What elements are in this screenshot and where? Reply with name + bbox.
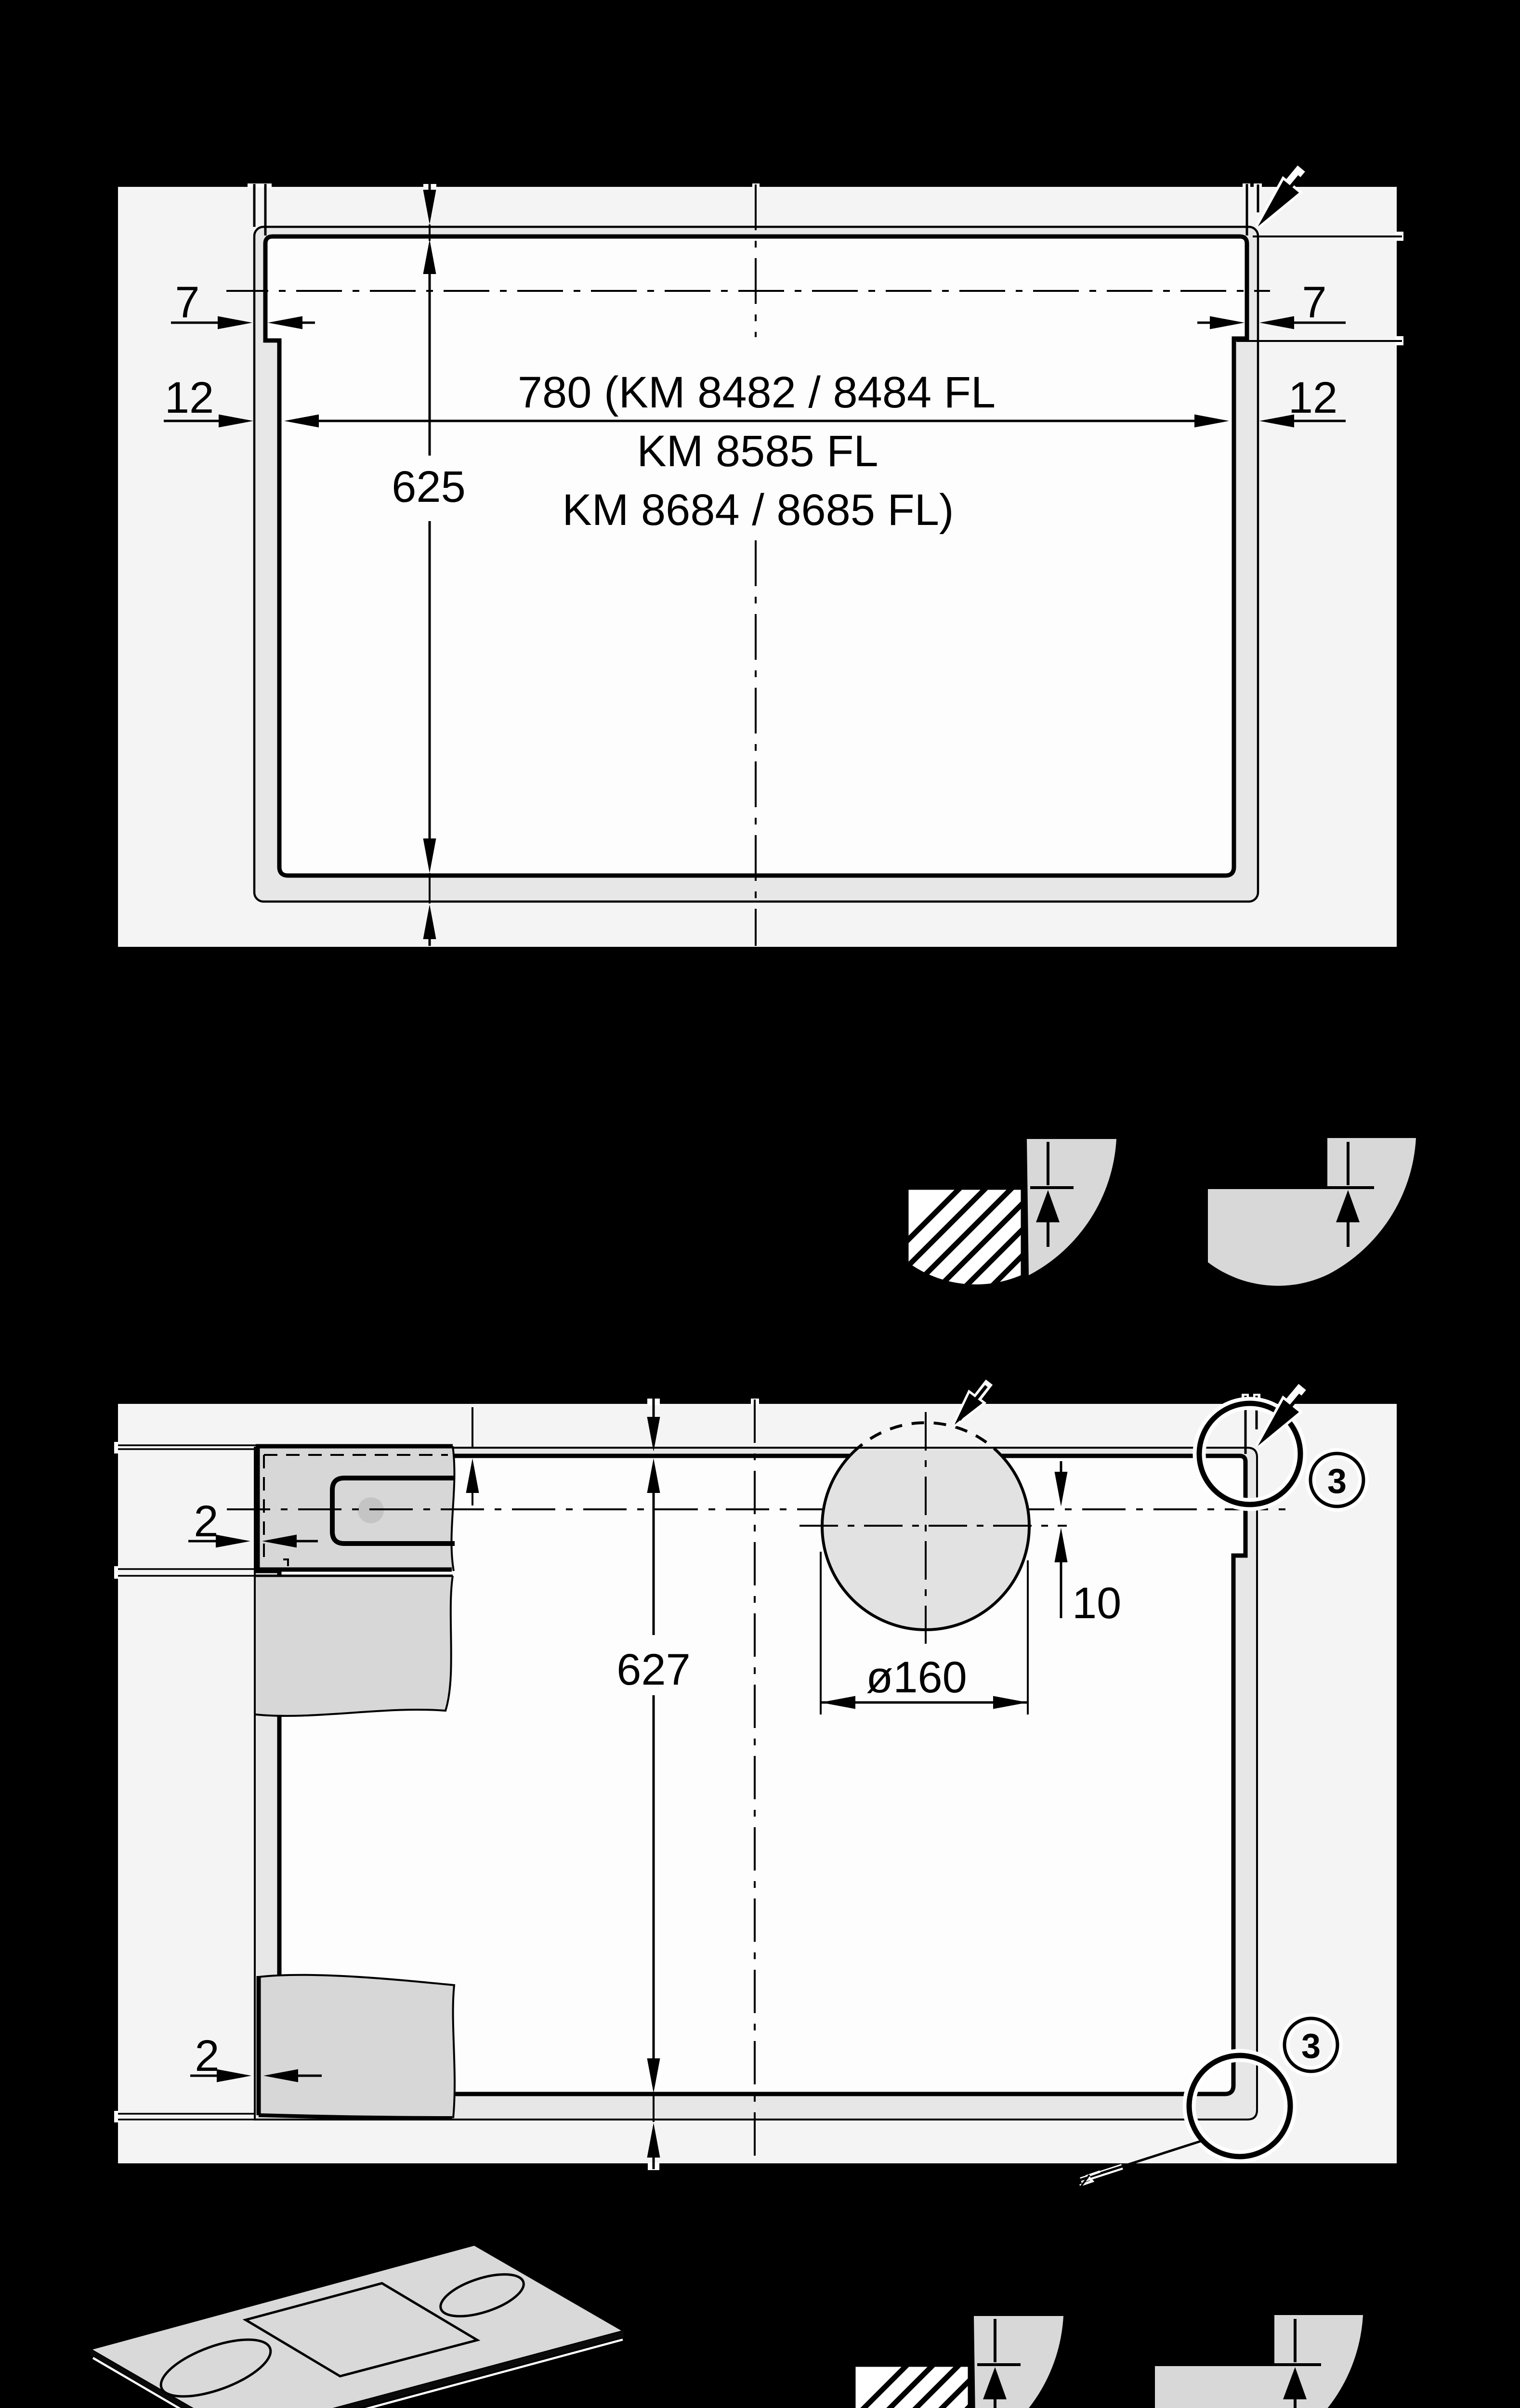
svg-text:3: 3 — [1301, 2027, 1321, 2066]
svg-text:12: 12 — [165, 373, 214, 422]
svg-text:625: 625 — [392, 462, 466, 511]
svg-text:2: 2 — [195, 2031, 219, 2081]
svg-text:12: 12 — [1288, 373, 1337, 422]
svg-text:3: 3 — [1327, 1462, 1347, 1501]
svg-text:KM 8585 FL: KM 8585 FL — [637, 427, 878, 476]
svg-text:7: 7 — [175, 278, 199, 327]
svg-text:ø160: ø160 — [866, 1653, 967, 1702]
svg-text:7: 7 — [1302, 278, 1326, 327]
svg-text:KM 8684 / 8685 FL): KM 8684 / 8685 FL) — [562, 485, 954, 535]
svg-text:627: 627 — [616, 1645, 691, 1694]
svg-text:780 (KM 8482 / 8484 FL: 780 (KM 8482 / 8484 FL — [518, 368, 996, 417]
svg-text:2: 2 — [194, 1497, 218, 1546]
svg-text:10: 10 — [1072, 1579, 1121, 1628]
